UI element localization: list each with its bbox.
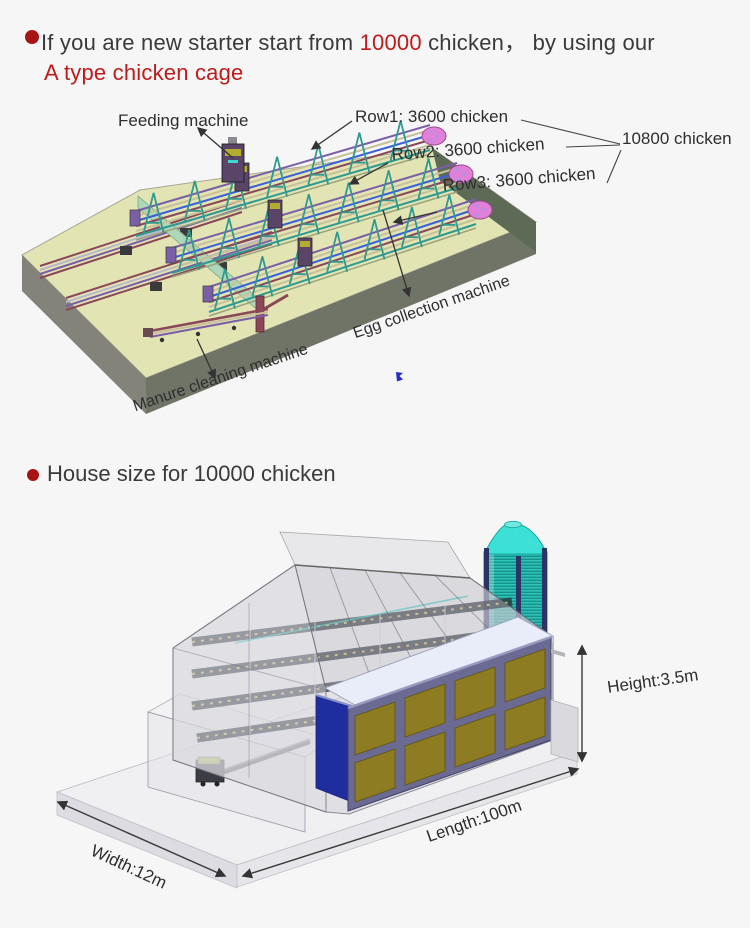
intro-line1-highlight: 10000 [360, 30, 422, 55]
feeding-machine-label: Feeding machine [118, 111, 248, 131]
cursor-artifact [396, 372, 403, 382]
feeding-machine-hopper [222, 137, 244, 182]
navy-wall [316, 695, 352, 802]
intro-bullet-icon [25, 30, 39, 44]
total-chicken-label: 10800 chicken [622, 129, 732, 149]
cage-diagram [22, 120, 621, 414]
house-diagram [57, 521, 582, 888]
row1-label: Row1: 3600 chicken [355, 107, 508, 127]
house-heading-bullet-icon [27, 469, 39, 481]
intro-line2: A type chicken cage [44, 60, 243, 86]
intro-line1-post: chicken， by using our [422, 30, 655, 55]
intro-line1-pre: If you are new starter start from [41, 30, 360, 55]
house-heading: House size for 10000 chicken [47, 461, 336, 487]
right-slab-block [551, 700, 578, 762]
product-infographic-page: If you are new starter start from 10000 … [0, 0, 750, 928]
intro-line1: If you are new starter start from 10000 … [41, 25, 655, 57]
